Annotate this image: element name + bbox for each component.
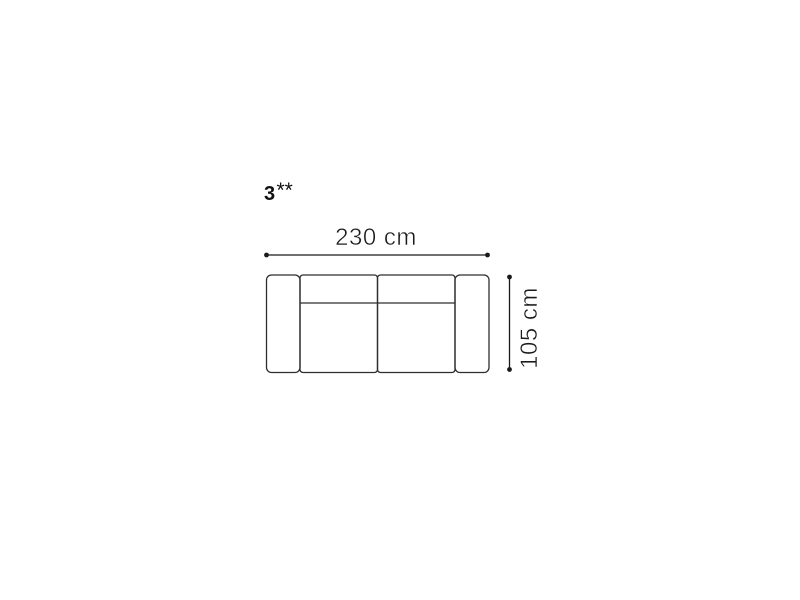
svg-text:**: **	[277, 179, 293, 202]
svg-text:230 cm: 230 cm	[335, 224, 417, 251]
svg-text:3: 3	[264, 183, 275, 205]
svg-text:105 cm: 105 cm	[516, 287, 543, 369]
